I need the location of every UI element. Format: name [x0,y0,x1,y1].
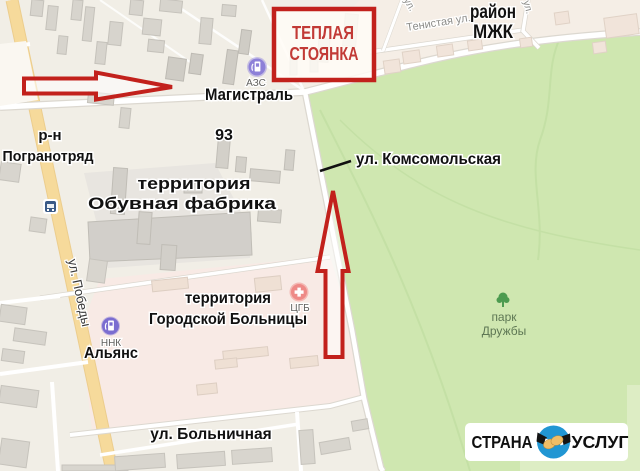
svg-text:СТРАНА: СТРАНА [472,432,533,452]
svg-text:МЖК: МЖК [473,22,513,43]
svg-text:Альянс: Альянс [84,345,138,362]
svg-text:территория: территория [185,290,271,307]
svg-text:ул. Комсомольская: ул. Комсомольская [356,151,501,168]
svg-text:СТОЯНКА: СТОЯНКА [290,43,359,64]
svg-text:Погранотряд: Погранотряд [3,148,94,165]
svg-text:УСЛУГ: УСЛУГ [572,432,629,452]
svg-text:93: 93 [215,127,233,144]
svg-text:Городской Больницы: Городской Больницы [149,311,307,328]
svg-text:Магистраль: Магистраль [205,85,293,104]
svg-text:Дружбы: Дружбы [482,324,526,338]
svg-text:территория: территория [138,174,251,193]
svg-text:парк: парк [491,310,517,324]
svg-text:Обувная фабрика: Обувная фабрика [88,194,277,213]
svg-text:ТЕПЛАЯ: ТЕПЛАЯ [292,22,354,43]
svg-text:ул. Больничная: ул. Больничная [150,426,271,443]
svg-text:р-н: р-н [38,127,61,144]
svg-text:район: район [470,2,516,23]
